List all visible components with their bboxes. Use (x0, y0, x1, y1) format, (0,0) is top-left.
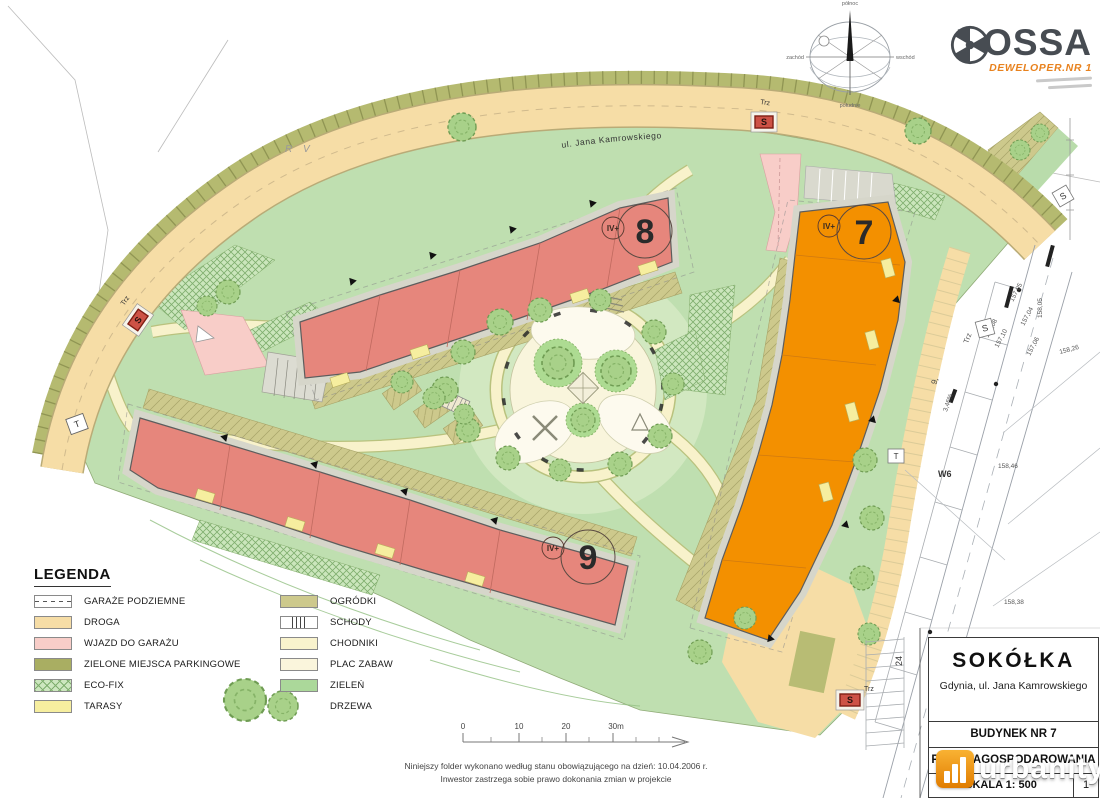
svg-text:S: S (847, 695, 853, 705)
legend-label: SCHODY (330, 617, 480, 628)
building-9-storeys: IV+ (547, 544, 560, 553)
legend-swatch-wjazd (34, 637, 72, 650)
building-7-storeys: IV+ (823, 222, 836, 231)
compass-west-label: zachód (786, 55, 804, 61)
note-line-2: Inwestor zastrzega sobie prawo dokonania… (400, 773, 712, 786)
svg-text:S: S (761, 117, 767, 127)
trz-label: Trz (864, 686, 874, 693)
legend-swatch-tarasy (34, 700, 72, 713)
area-rv-label: R V (285, 144, 314, 155)
scale-tick-label: 10 (515, 722, 524, 731)
elevation-label: 158,46 (998, 463, 1018, 470)
legend-label: ZIELEŃ (330, 680, 480, 691)
compass-south-label: południe (840, 103, 861, 109)
legend-swatch-drzewa (280, 700, 318, 713)
urbanity-watermark: urbanity .pl (936, 750, 1100, 788)
project-address: Gdynia, ul. Jana Kamrowskiego (929, 680, 1098, 692)
building-8-number: 8 (636, 213, 655, 251)
site-plan-page: ul. Jana Kamrowskiego (0, 0, 1100, 798)
legend-label: ZIELONE MIEJSCA PARKINGOWE (84, 659, 270, 670)
legend-label: TARASY (84, 701, 270, 712)
urbanity-logo-icon (936, 750, 974, 788)
legend-swatch-zielen (280, 679, 318, 692)
legend-swatch-schody (280, 616, 318, 629)
title-block-header: SOKÓŁKA Gdynia, ul. Jana Kamrowskiego (929, 649, 1098, 722)
elevation-label: 158,05 (1037, 298, 1044, 318)
legend-swatch-garaze-podziemne (34, 595, 72, 608)
t-box-marker: T (888, 449, 904, 463)
logo-decorative-bar (1036, 77, 1092, 83)
legend-swatch-ogrodki (280, 595, 318, 608)
legend: LEGENDA GARAŻE PODZIEMNE OGRÓDKI DROGA S… (34, 566, 480, 713)
legend-title: LEGENDA (34, 566, 111, 587)
elevation-label: 158,38 (1004, 599, 1024, 606)
legend-swatch-ecofix (34, 679, 72, 692)
scale-tick-label: 20 (562, 722, 571, 731)
legend-label: CHODNIKI (330, 638, 480, 649)
legend-label: GARAŻE PODZIEMNE (84, 596, 270, 607)
building-8-storeys: IV+ (607, 224, 620, 233)
watermark-name: urbanity (979, 752, 1100, 786)
developer-logo: HOSSA DEWELOPER.NR 1 (949, 24, 1092, 88)
legend-swatch-plac-zabaw (280, 658, 318, 671)
legend-label: WJAZD DO GARAŻU (84, 638, 270, 649)
compass-north-label: północ (842, 1, 858, 7)
building-7-number: 7 (855, 214, 874, 252)
legend-label: DRZEWA (330, 701, 480, 712)
legend-swatch-chodniki (280, 637, 318, 650)
scale-tick-label: 0 (461, 722, 466, 731)
legend-swatch-droga (34, 616, 72, 629)
w6-label: W6 (938, 469, 952, 479)
legend-label: DROGA (84, 617, 270, 628)
project-name: SOKÓŁKA (929, 649, 1098, 673)
legend-label: PLAC ZABAW (330, 659, 480, 670)
legend-label: ECO-FIX (84, 680, 270, 691)
disclaimer-notes: Niniejszy folder wykonano według stanu o… (400, 760, 712, 786)
building-row: BUDYNEK NR 7 (929, 722, 1098, 748)
row-24-label: 24 (894, 656, 904, 666)
compass-east-label: wschód (895, 55, 915, 61)
legend-swatch-zielone-parkingi (34, 658, 72, 671)
svg-text:T: T (894, 452, 899, 461)
note-line-1: Niniejszy folder wykonano według stanu o… (400, 760, 712, 773)
legend-label: OGRÓDKI (330, 596, 480, 607)
scale-tick-label: 30m (608, 722, 624, 731)
trz-label: Trz (760, 99, 771, 107)
building-9-number: 9 (579, 539, 598, 577)
